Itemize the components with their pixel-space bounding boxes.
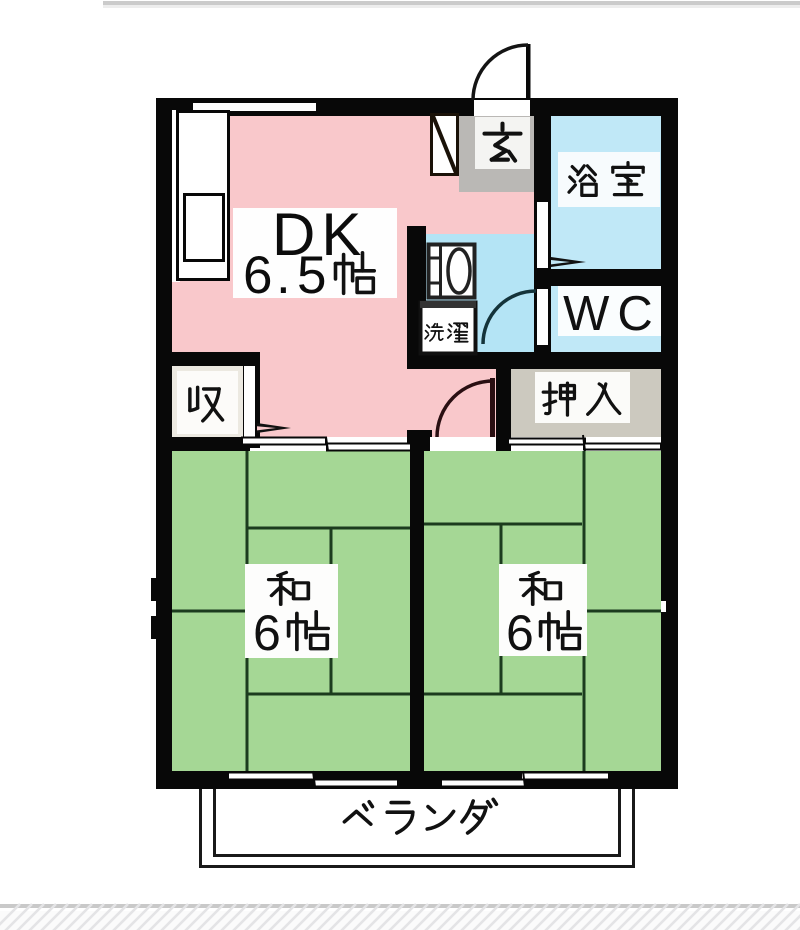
svg-text:5: 5	[297, 246, 326, 305]
svg-text:6: 6	[243, 246, 272, 305]
svg-text:6: 6	[253, 605, 281, 661]
svg-text:6: 6	[506, 605, 534, 661]
svg-text:WC: WC	[563, 287, 661, 341]
svg-text:.: .	[276, 246, 291, 305]
